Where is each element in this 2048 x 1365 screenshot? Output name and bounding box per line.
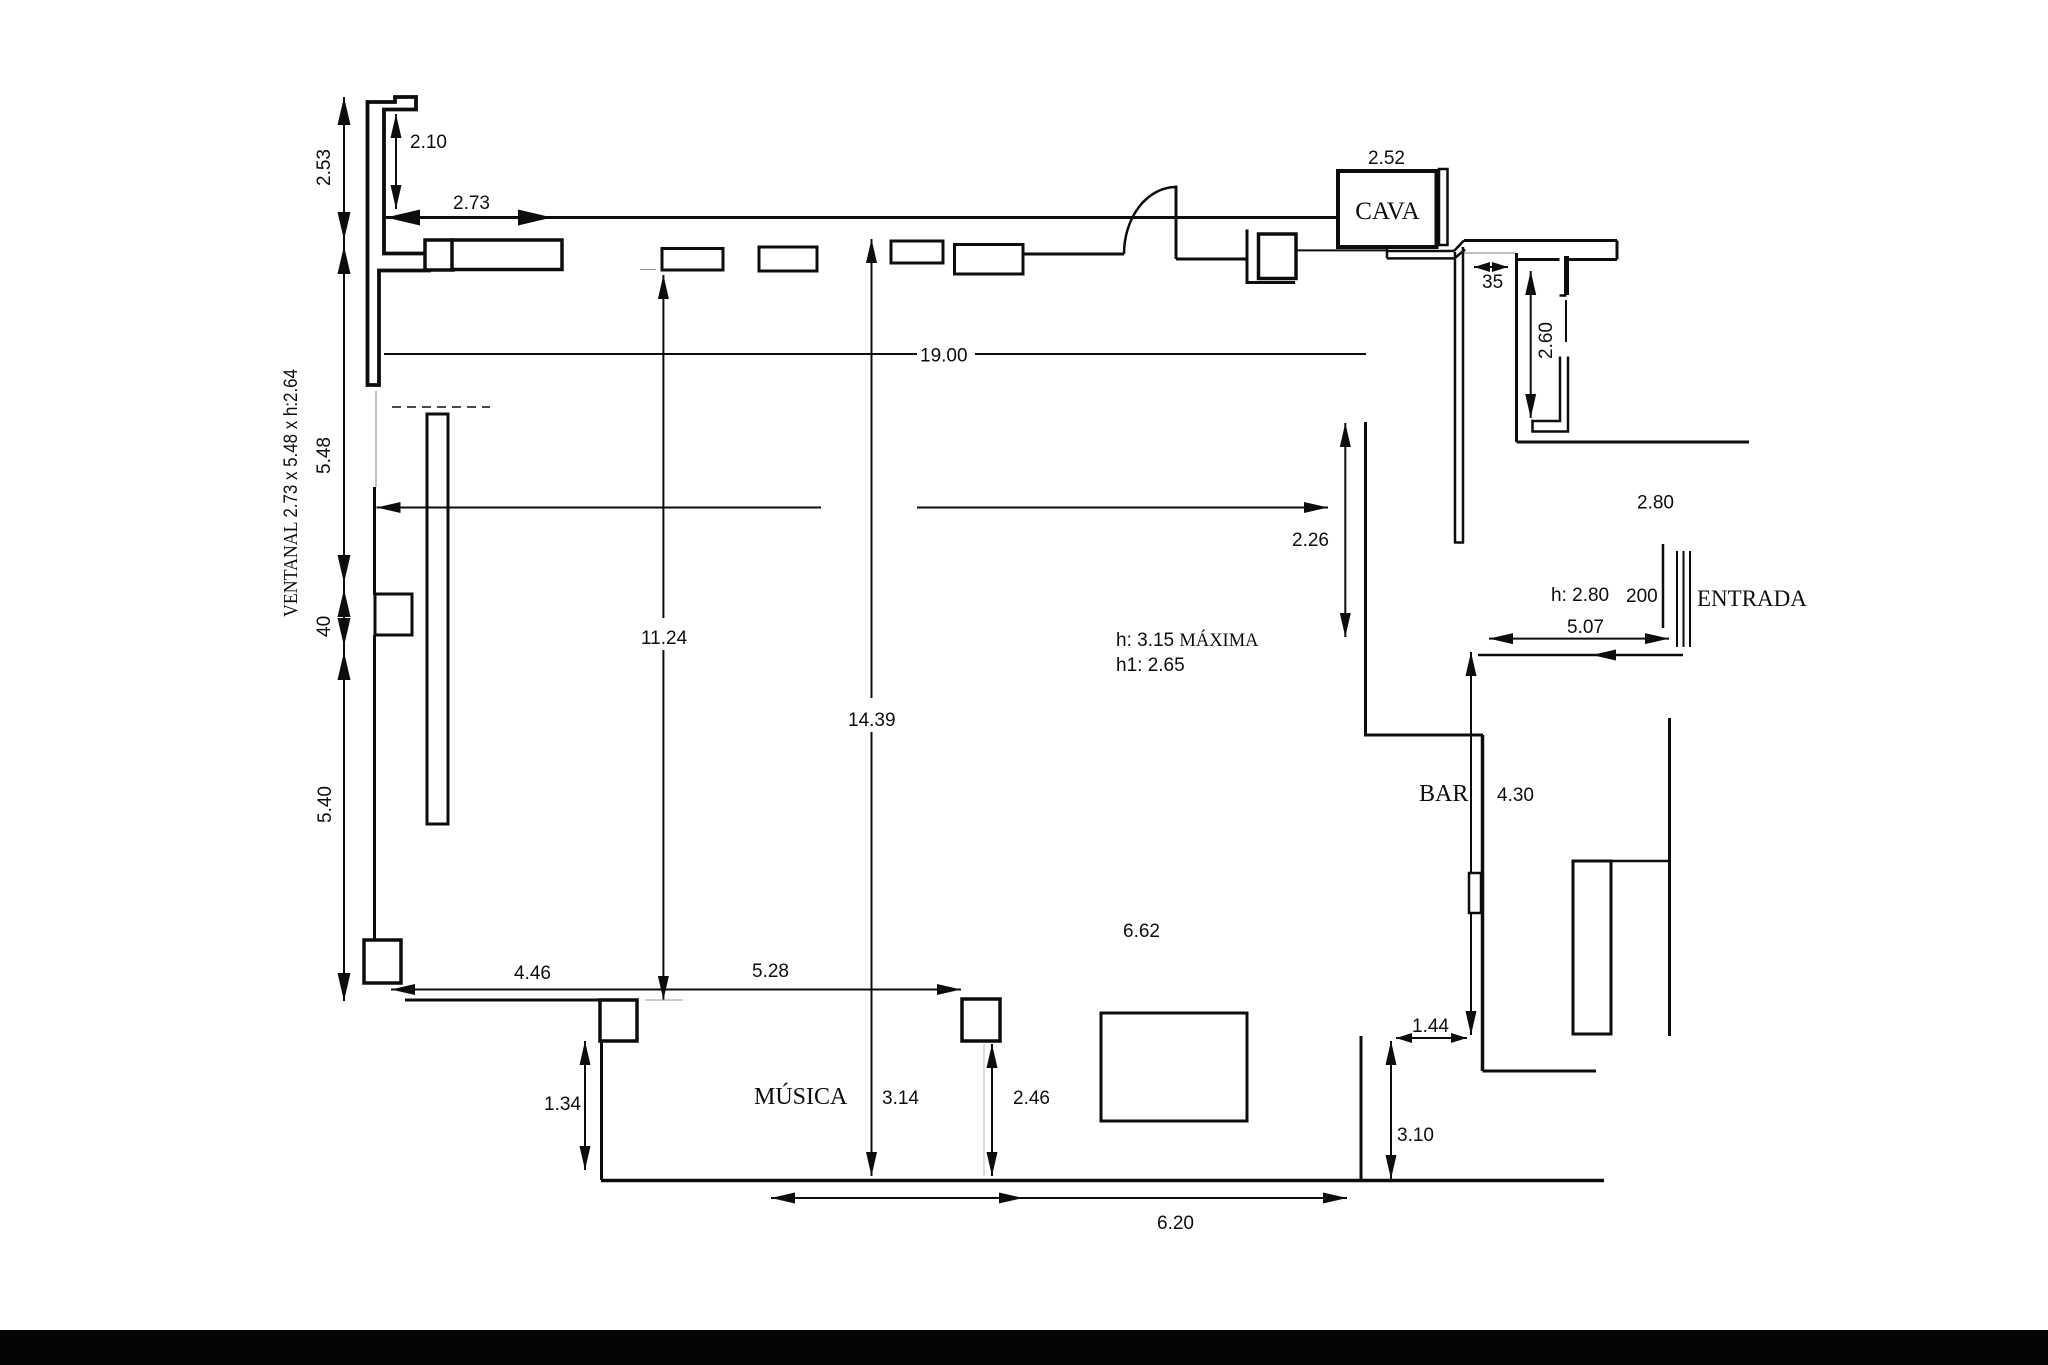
svg-text:h: 3.15 MÁXIMA: h: 3.15 MÁXIMA (1116, 629, 1259, 651)
svg-text:2.53: 2.53 (314, 149, 335, 186)
svg-text:CAVA: CAVA (1355, 198, 1419, 225)
svg-text:14.39: 14.39 (848, 710, 896, 731)
svg-text:2.26: 2.26 (1292, 530, 1329, 551)
svg-text:MÚSICA: MÚSICA (754, 1083, 848, 1110)
svg-text:1.34: 1.34 (544, 1094, 581, 1115)
svg-text:VENTANAL 2.73 x 5.48 x h:2.64: VENTANAL 2.73 x 5.48 x h:2.64 (280, 369, 302, 617)
svg-text:19.00: 19.00 (920, 346, 968, 367)
svg-text:4.30: 4.30 (1497, 785, 1534, 806)
svg-text:2.60: 2.60 (1536, 322, 1557, 359)
svg-text:2.52: 2.52 (1368, 148, 1405, 169)
svg-text:3.10: 3.10 (1397, 1125, 1434, 1146)
svg-text:h: 2.80: h: 2.80 (1551, 585, 1609, 606)
svg-text:ENTRADA: ENTRADA (1697, 586, 1807, 611)
svg-text:1.44: 1.44 (1412, 1016, 1449, 1037)
svg-text:2.10: 2.10 (410, 132, 447, 153)
svg-text:5.07: 5.07 (1567, 617, 1604, 638)
svg-text:5.28: 5.28 (752, 961, 789, 982)
svg-text:5.48: 5.48 (314, 437, 335, 474)
svg-text:6.20: 6.20 (1157, 1213, 1194, 1234)
svg-text:2.80: 2.80 (1637, 493, 1674, 514)
svg-text:6.62: 6.62 (1123, 921, 1160, 942)
svg-text:2.46: 2.46 (1013, 1088, 1050, 1109)
svg-text:4.46: 4.46 (514, 963, 551, 984)
svg-text:11.24: 11.24 (641, 628, 688, 649)
svg-text:2.73: 2.73 (453, 193, 490, 214)
svg-text:BAR: BAR (1419, 781, 1468, 807)
svg-text:40: 40 (314, 616, 335, 637)
svg-text:35: 35 (1482, 272, 1503, 293)
svg-text:200: 200 (1626, 586, 1658, 607)
svg-text:3.14: 3.14 (882, 1088, 919, 1109)
svg-text:h1: 2.65: h1: 2.65 (1116, 655, 1185, 676)
svg-text:5.40: 5.40 (315, 786, 336, 823)
